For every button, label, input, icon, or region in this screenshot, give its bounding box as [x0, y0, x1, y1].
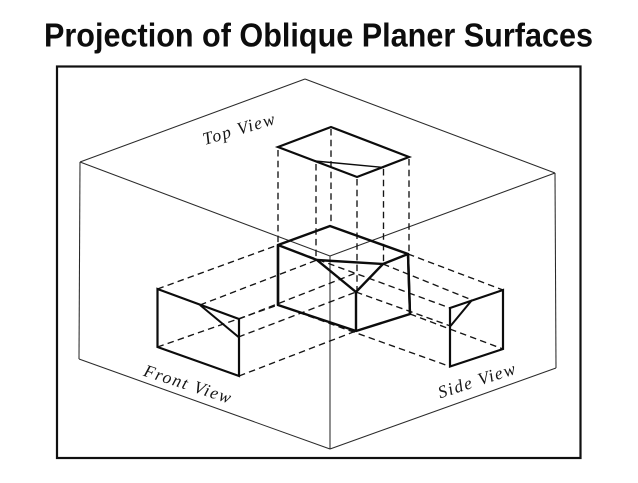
- svg-text:Projection of Oblique Planer S: Projection of Oblique Planer Surfaces: [44, 17, 593, 54]
